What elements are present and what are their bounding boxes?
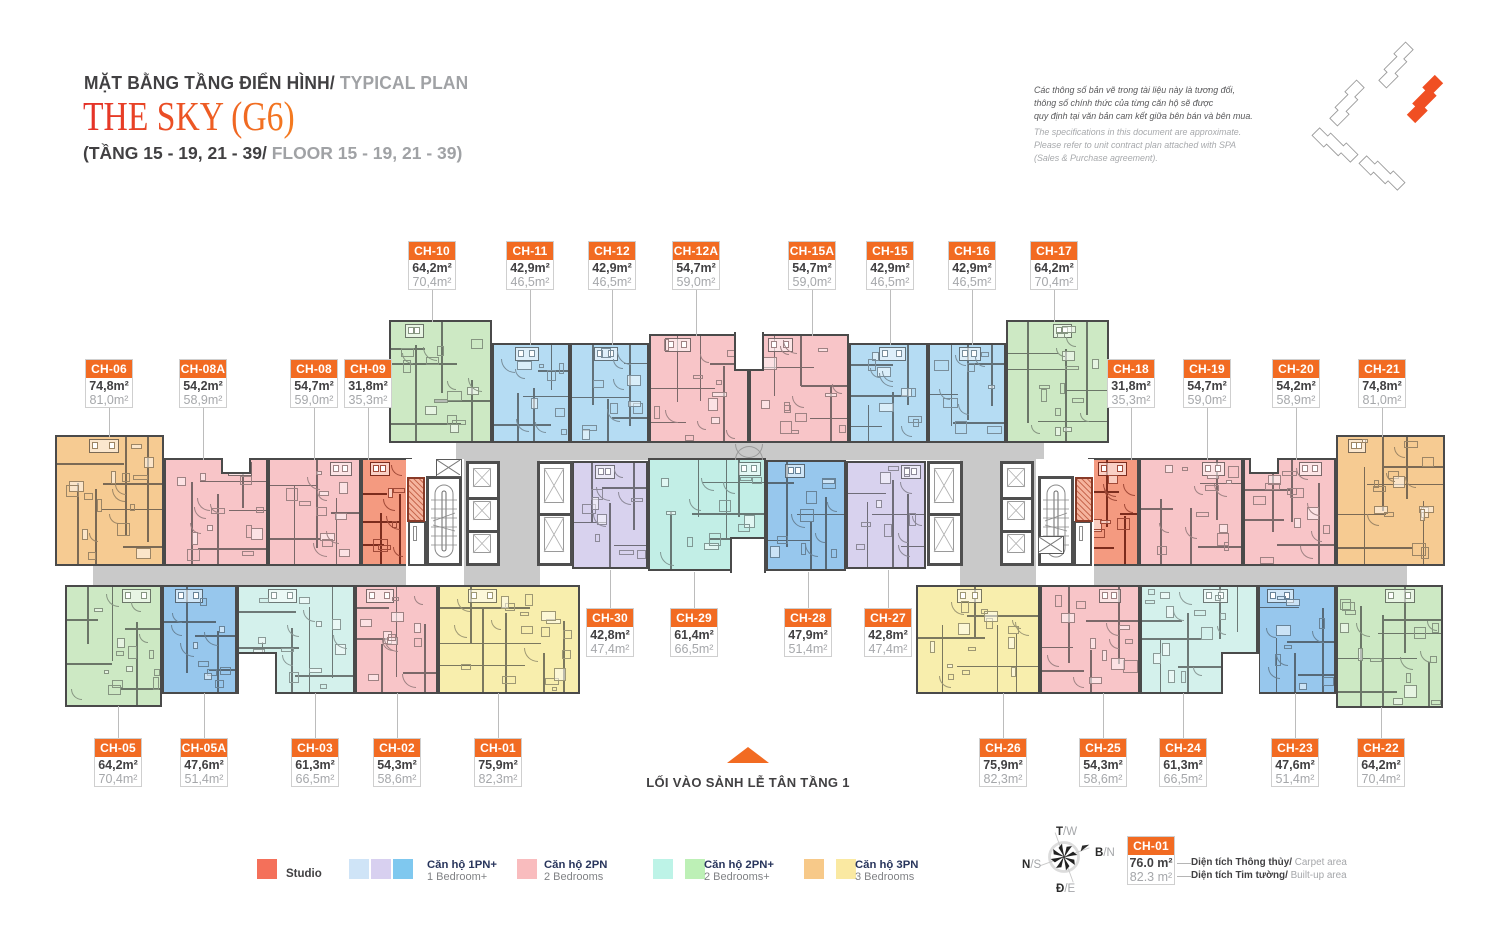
- svg-text:T/W: T/W: [1056, 826, 1077, 838]
- svg-text:Đ/E: Đ/E: [1056, 883, 1076, 895]
- svg-text:B/N: B/N: [1095, 847, 1115, 859]
- svg-text:N/S: N/S: [1022, 859, 1042, 871]
